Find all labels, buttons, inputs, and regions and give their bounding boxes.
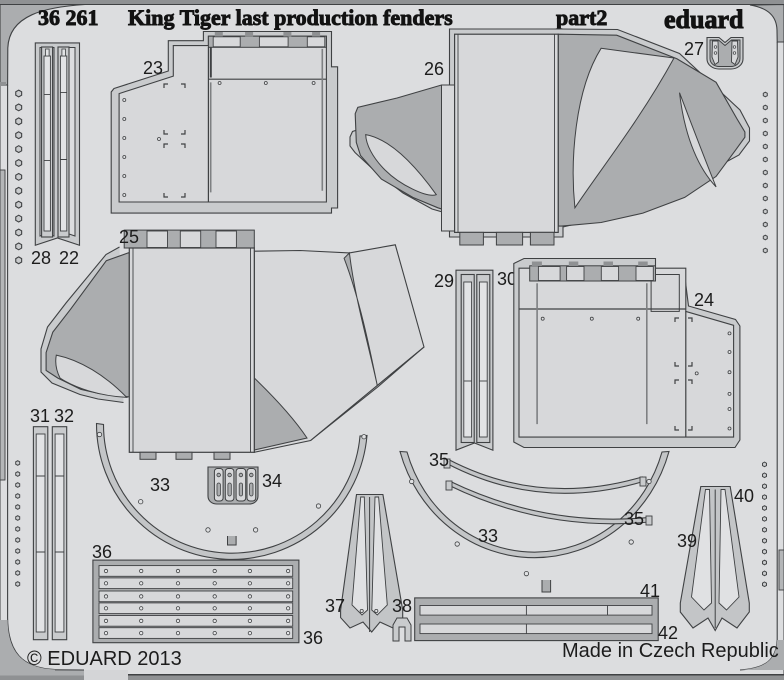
svg-text:37: 37 [325, 596, 345, 616]
svg-text:Made in Czech Republic: Made in Czech Republic [562, 640, 779, 662]
svg-text:27: 27 [684, 39, 704, 59]
svg-text:24: 24 [694, 290, 714, 310]
svg-text:38: 38 [392, 596, 412, 616]
svg-text:26: 26 [424, 59, 444, 79]
svg-text:22: 22 [59, 248, 79, 268]
svg-text:32: 32 [54, 406, 74, 426]
svg-text:part2: part2 [556, 5, 607, 30]
svg-text:36 261: 36 261 [38, 5, 99, 30]
svg-text:40: 40 [734, 486, 754, 506]
svg-text:© EDUARD 2013: © EDUARD 2013 [27, 648, 182, 670]
svg-text:33: 33 [478, 526, 498, 546]
svg-text:31: 31 [30, 406, 50, 426]
svg-text:29: 29 [434, 271, 454, 291]
svg-text:35: 35 [429, 450, 449, 470]
svg-text:39: 39 [677, 531, 697, 551]
svg-text:36: 36 [92, 542, 112, 562]
svg-text:King Tiger last production fen: King Tiger last production fenders [128, 5, 453, 30]
svg-text:33: 33 [150, 475, 170, 495]
svg-text:28: 28 [31, 248, 51, 268]
svg-text:36: 36 [303, 628, 323, 648]
svg-text:23: 23 [143, 58, 163, 78]
svg-text:eduard: eduard [664, 5, 744, 34]
svg-text:34: 34 [262, 471, 282, 491]
svg-text:25: 25 [119, 227, 139, 247]
svg-text:41: 41 [640, 581, 660, 601]
svg-text:35: 35 [624, 509, 644, 529]
